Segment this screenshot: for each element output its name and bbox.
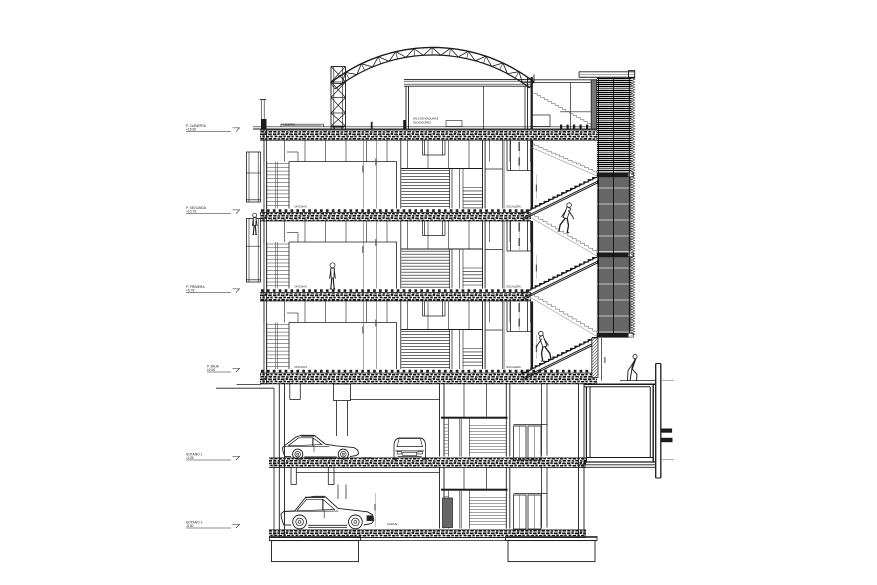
svg-text:ASCENSORES: ASCENSORES xyxy=(413,120,431,124)
svg-text:OFICINAS: OFICINAS xyxy=(294,365,307,369)
svg-text:+10.76: +10.76 xyxy=(186,210,196,214)
svg-text:ESCALERA: ESCALERA xyxy=(507,365,522,369)
svg-text:+15.90: +15.90 xyxy=(186,128,196,132)
svg-text:-4.25: -4.25 xyxy=(186,456,194,460)
svg-text:ESCALERA: ESCALERA xyxy=(507,285,522,289)
svg-text:CUBIERTA: CUBIERTA xyxy=(282,123,296,127)
svg-text:SALA DE MAQUINAS: SALA DE MAQUINAS xyxy=(413,117,439,121)
svg-text:-8.50: -8.50 xyxy=(186,524,194,528)
svg-text:OFICINAS: OFICINAS xyxy=(294,204,307,208)
svg-text:ESCALERA: ESCALERA xyxy=(507,205,522,209)
svg-text:+5.78: +5.78 xyxy=(186,289,195,293)
svg-text:OFICINAS: OFICINAS xyxy=(294,284,307,288)
svg-text:GARAJE: GARAJE xyxy=(387,522,398,526)
svg-text:GARAJE: GARAJE xyxy=(361,456,372,460)
svg-text:±0.00: ±0.00 xyxy=(207,368,215,372)
